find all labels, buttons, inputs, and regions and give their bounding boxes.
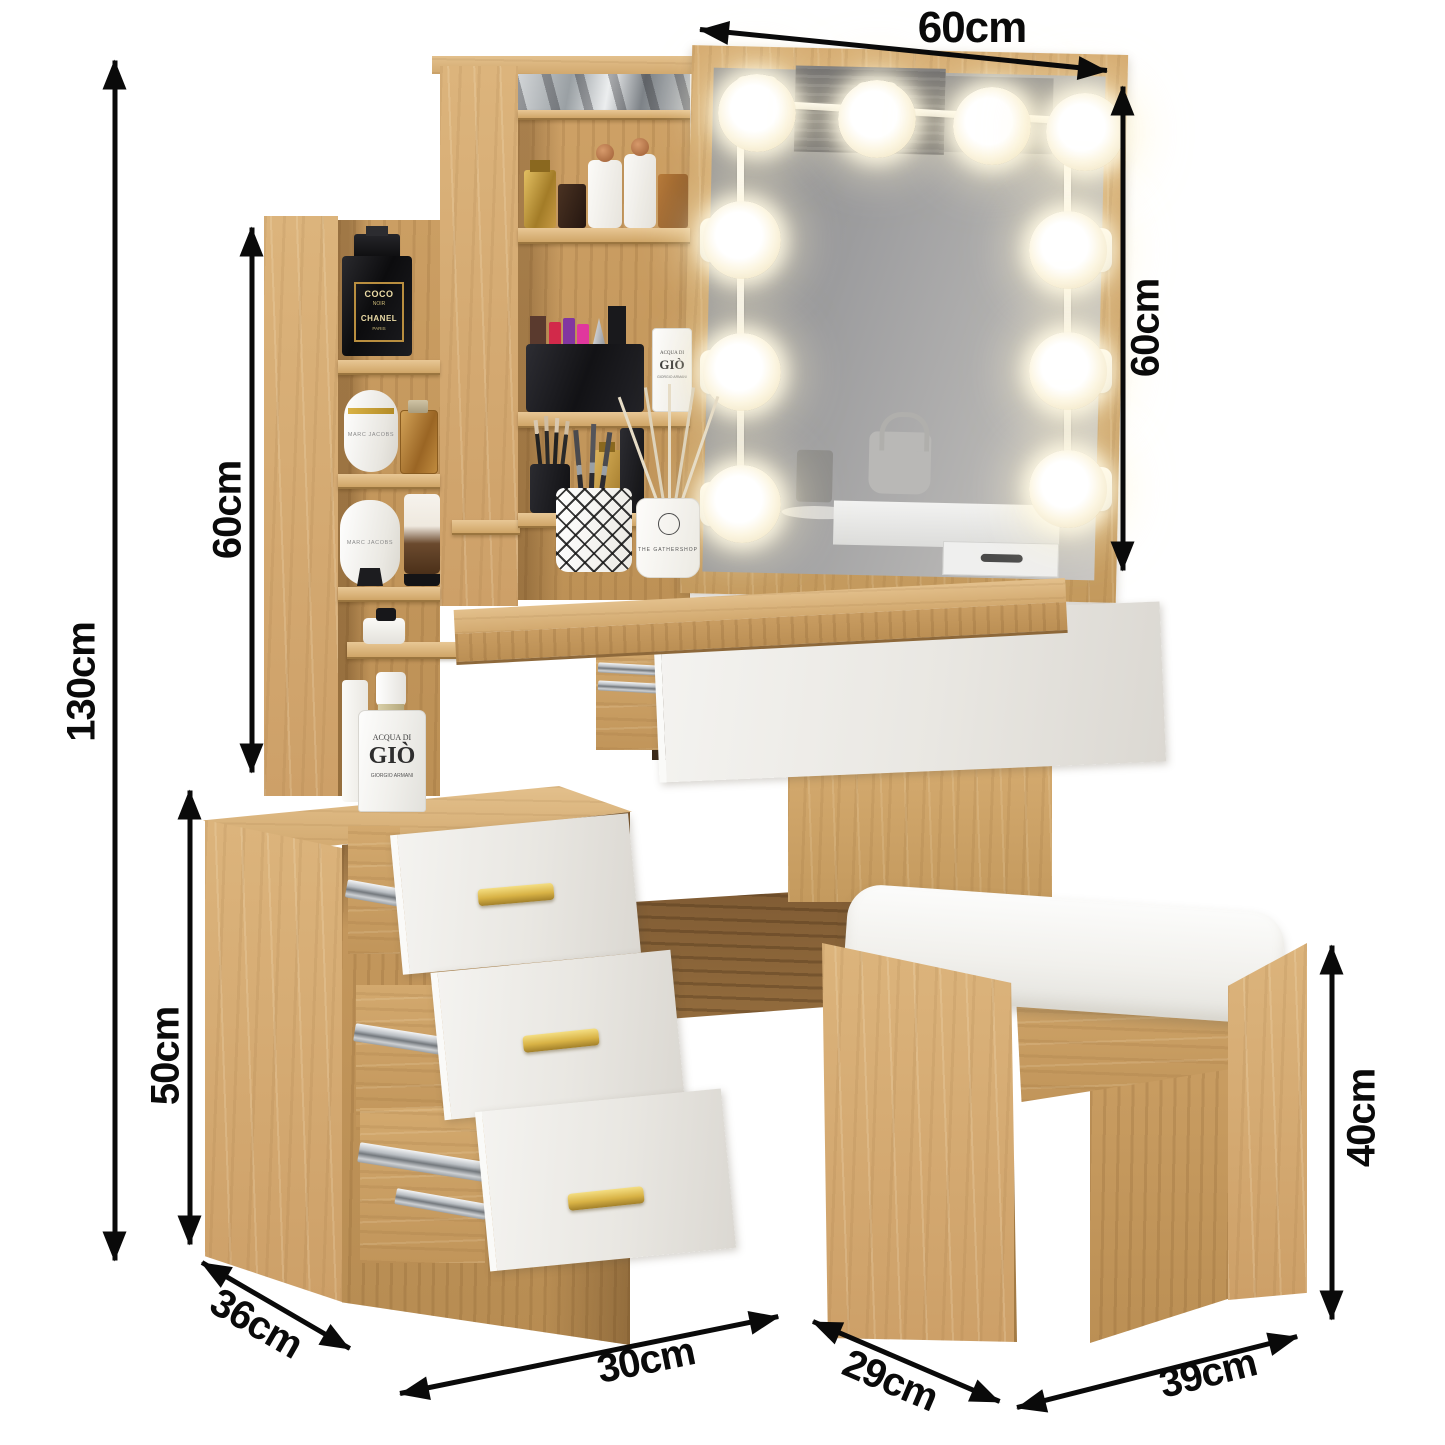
acqua-shelf-line2: GIÒ	[653, 357, 691, 373]
hand-cream-tube-cap	[404, 574, 440, 586]
unit-mirror-strip	[518, 74, 690, 110]
perfume-gold-bottle	[524, 170, 556, 228]
tower-shelf-board-3	[338, 587, 440, 602]
chanel-label-line4: PARIS	[356, 326, 402, 331]
reed-diffuser-jar: THE GATHERSHOP	[636, 498, 700, 578]
light-bulb-right-1	[1029, 211, 1107, 289]
stool-inner-leg-face	[1090, 1063, 1230, 1343]
reflection-pencil-cup	[796, 450, 833, 503]
reflection-drawer-handle	[981, 554, 1023, 563]
diffuser-label: THE GATHERSHOP	[637, 547, 699, 553]
chanel-bottle-neck	[366, 226, 388, 236]
dim-label-total-height: 130cm	[60, 622, 105, 742]
light-bulb-right-3	[1029, 450, 1107, 528]
light-tube-left	[737, 115, 744, 510]
perfume-copper-cap-2	[631, 138, 649, 156]
cosmetic-jar-white	[363, 618, 405, 644]
tower-shelf-board-2	[338, 474, 440, 489]
patterned-brush-cup	[556, 488, 632, 572]
drawer3-front	[475, 1089, 736, 1272]
unit-shelf-board-1	[518, 228, 690, 244]
light-bulb-top-2	[838, 80, 916, 158]
light-bulb-left-1	[703, 201, 781, 279]
perfume-gold-cap	[530, 160, 550, 172]
acqua-di-gio-large-bottle: ACQUA DI GIÒ GIORGIO ARMANI	[358, 710, 426, 812]
chanel-label-line3: CHANEL	[356, 314, 402, 323]
tower-shelf-board-1	[338, 360, 440, 375]
perfume-white-bottle-1	[588, 160, 622, 228]
marc-jacobs-bottle-upper: MARC JACOBS	[344, 390, 398, 472]
perfume-copper-cap-1	[596, 144, 614, 162]
dim-label-mirror-width: 60cm	[918, 3, 1027, 53]
amber-bottle-cap	[408, 400, 428, 413]
light-bulb-left-3	[703, 465, 781, 543]
tower-front-plank	[264, 216, 338, 796]
acqua-di-gio-large-cap	[376, 672, 406, 706]
tower-step-shelf-upper	[452, 520, 520, 535]
acqua-large-line2: GIÒ	[359, 743, 425, 770]
dim-label-stool-height: 40cm	[1340, 1069, 1385, 1167]
dim-label-mirror-height: 60cm	[1124, 279, 1169, 377]
hand-cream-tube	[404, 494, 440, 574]
drawer3-box-side	[360, 1108, 485, 1263]
amber-perfume-bottle	[400, 410, 438, 474]
acqua-large-line3: GIORGIO ARMANI	[359, 773, 425, 779]
stool-right-side-panel	[1228, 943, 1307, 1300]
product-dimension-image: COCO NOIR CHANEL PARIS MARC JACOBS MARC …	[0, 0, 1445, 1445]
marc-jacobs-bottle-lower: MARC JACOBS	[340, 500, 400, 586]
dim-label-shelf-height: 60cm	[206, 461, 251, 559]
light-bulb-top-3	[953, 87, 1031, 165]
acqua-shelf-line3: GIORGIO ARMANI	[653, 375, 691, 379]
chanel-label-line2: NOIR	[356, 301, 402, 307]
diffuser-logo-circle	[658, 513, 680, 535]
acqua-shelf-line1: ACQUA DI	[653, 351, 691, 356]
acqua-large-line1: ACQUA DI	[359, 733, 425, 742]
dim-arrow-stool-height	[1330, 946, 1335, 1320]
marc-jacobs-base	[357, 568, 383, 586]
reflection-handbag-handle	[879, 411, 930, 451]
perfume-dark-bottle	[558, 184, 586, 228]
light-tube-right	[1064, 133, 1071, 495]
dim-label-stool-depth: 39cm	[1155, 1340, 1261, 1407]
mascara-black	[608, 306, 626, 348]
cosmetic-jar-cap	[376, 608, 396, 621]
chanel-label: COCO NOIR CHANEL PARIS	[354, 282, 404, 342]
lipstick-organizer	[526, 344, 644, 412]
cabinet-front-panel	[205, 820, 342, 1302]
acqua-di-gio-shelf-bottle: ACQUA DI GIÒ GIORGIO ARMANI	[652, 328, 692, 412]
marc-jacobs-lower-label: MARC JACOBS	[340, 540, 400, 546]
lipstick-brown	[530, 316, 546, 346]
perfume-amber-bottle	[658, 174, 688, 228]
unit-mirror-strip-ledge	[518, 110, 690, 120]
perfume-white-bottle-2	[624, 154, 656, 228]
dim-arrow-total-height	[113, 61, 118, 1261]
marc-jacobs-gold-band	[348, 408, 394, 414]
stool-left-side-panel	[822, 943, 1017, 1342]
light-bulb-top-1	[718, 74, 796, 152]
chanel-perfume-bottle: COCO NOIR CHANEL PARIS	[342, 256, 412, 356]
light-bulb-right-2	[1029, 332, 1107, 410]
chanel-label-line1: COCO	[356, 289, 402, 299]
reed-stick-3	[668, 384, 671, 508]
dim-label-cabinet-height: 50cm	[144, 1007, 189, 1105]
marc-jacobs-upper-label: MARC JACOBS	[344, 432, 398, 438]
